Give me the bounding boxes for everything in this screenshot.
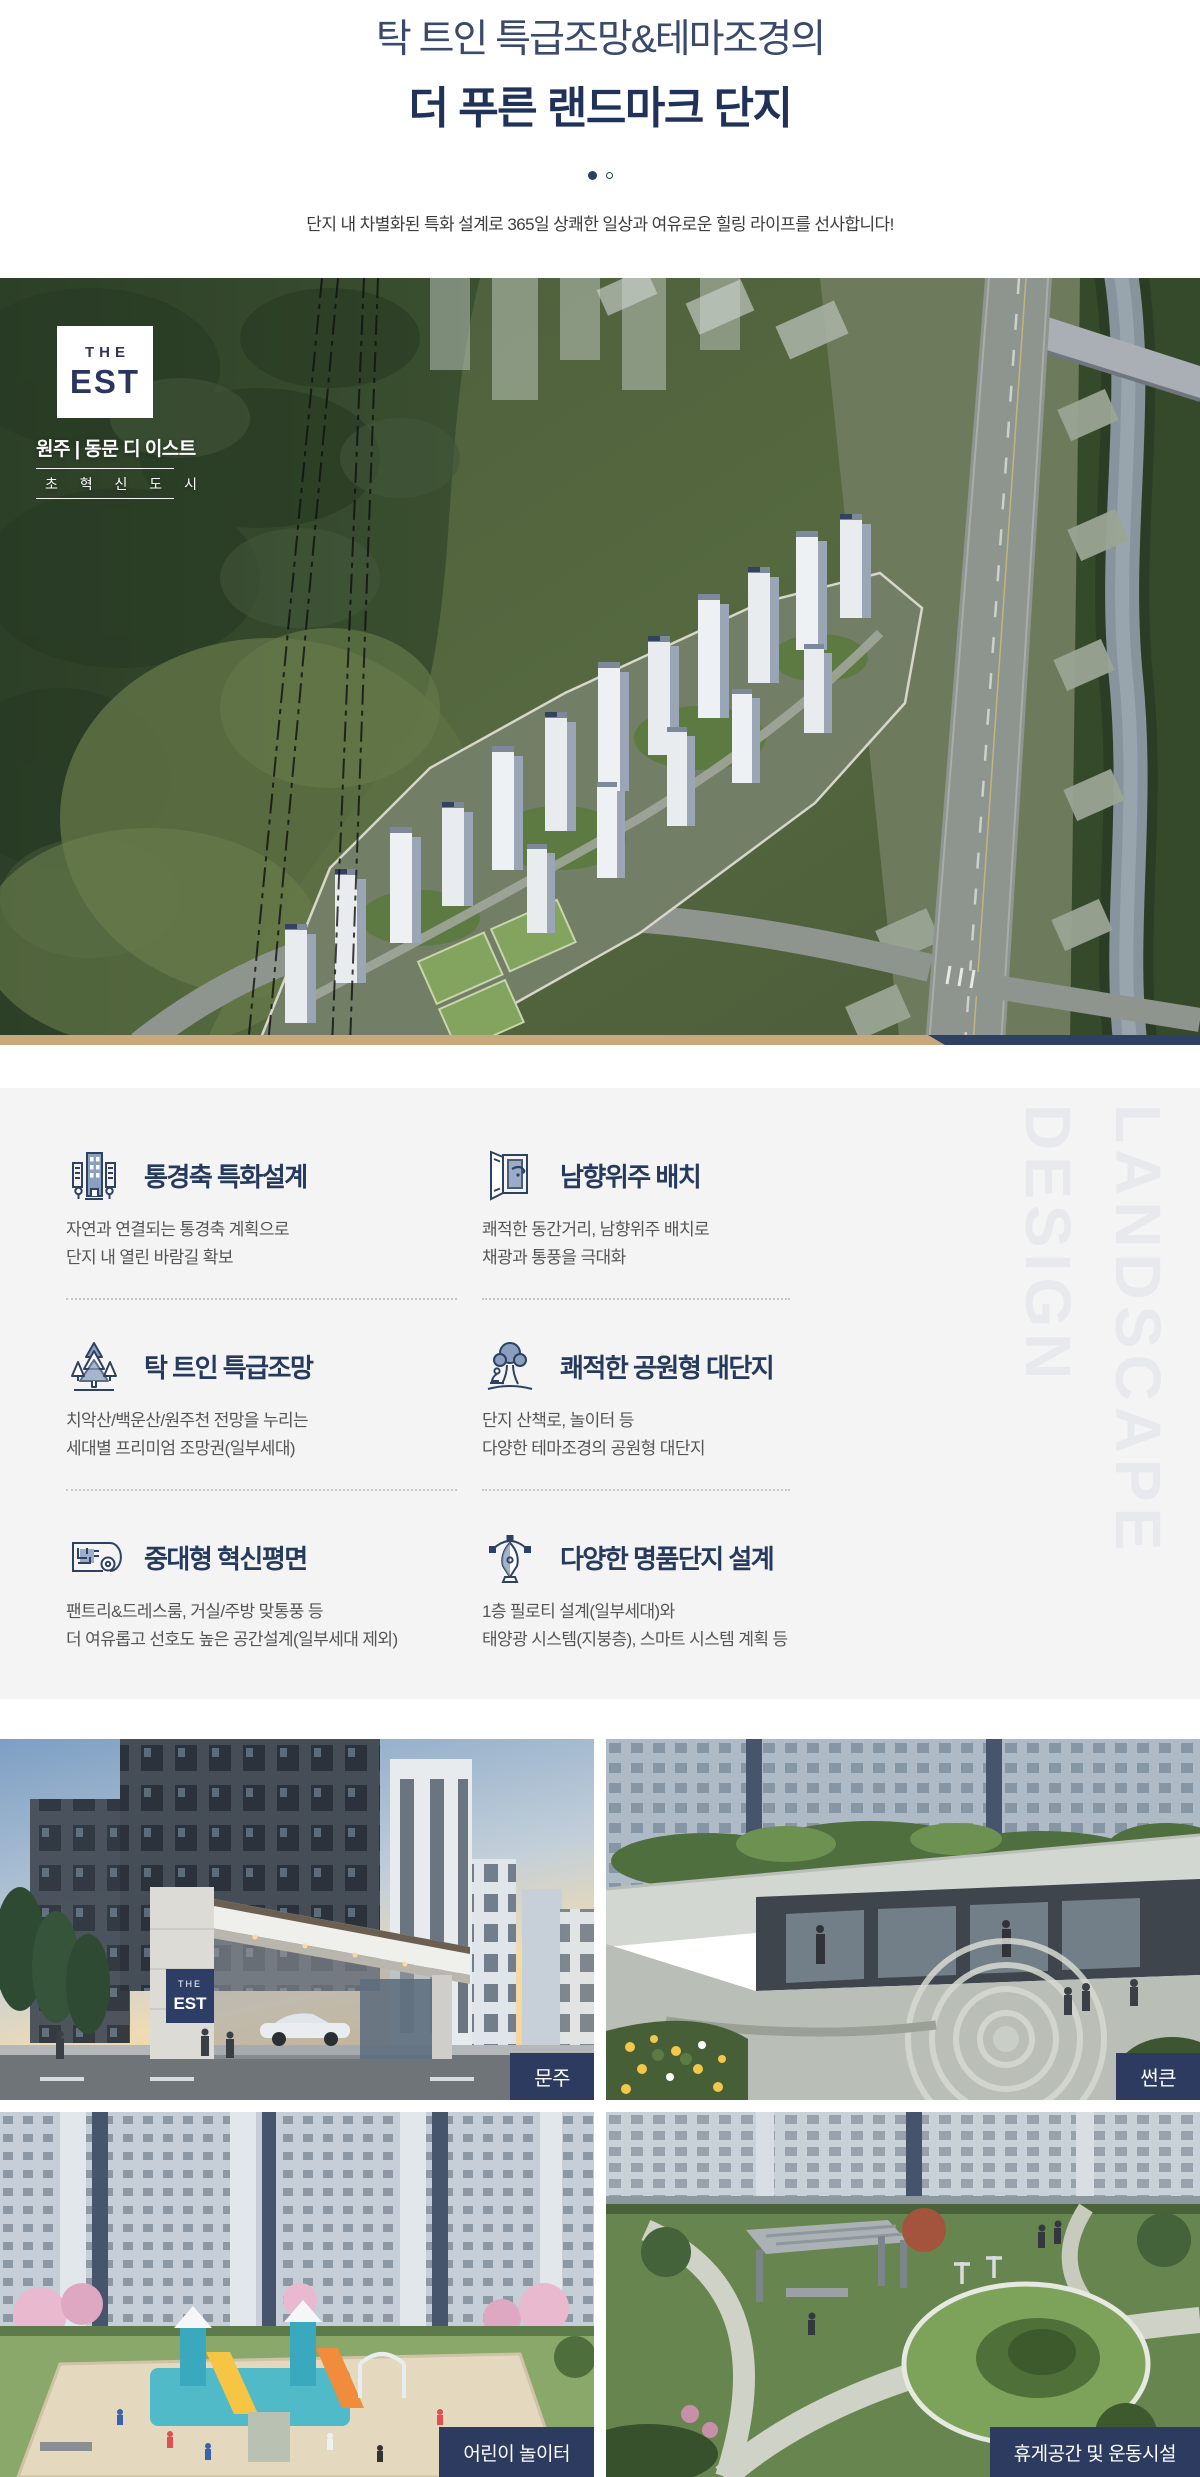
- feature-title: 중대형 혁신평면: [144, 1539, 307, 1576]
- hero-header: 탁 트인 특급조망&테마조경의 더 푸른 랜드마크 단지 단지 내 차별화된 특…: [0, 0, 1200, 278]
- feature-title: 남향위주 배치: [560, 1157, 700, 1194]
- feature-premium-design: 다양한 명품단지 설계 1층 필로티 설계(일부세대)와태양광 시스템(지붕층)…: [482, 1529, 790, 1680]
- feature-description: 쾌적한 동간거리, 남향위주 배치로채광과 통풍을 극대화: [482, 1216, 790, 1272]
- accent-bar-navy: [0, 1035, 1200, 1045]
- meadow-patch: [220, 628, 440, 788]
- tile-label-playground: 어린이 놀이터: [439, 2427, 594, 2477]
- feature-description: 단지 산책로, 놀이터 등다양한 테마조경의 공원형 대단지: [482, 1407, 790, 1463]
- feature-description: 자연과 연결되는 통경축 계획으로단지 내 열린 바람길 확보: [66, 1216, 457, 1272]
- landscape-design-section: DESIGN LANDSCAPE: [0, 1088, 1200, 1699]
- sunken-rendering-image: [606, 1739, 1200, 2100]
- accent-bar-tan: [0, 1035, 945, 1045]
- feature-title: 탁 트인 특급조망: [144, 1348, 312, 1385]
- feature-description: 치악산/백운산/원주천 전망을 누리는세대별 프리미엄 조망권(일부세대): [66, 1407, 457, 1463]
- feature-innovative-floorplan: 중대형 혁신평면 팬트리&드레스룸, 거실/주방 맞통풍 등더 여유롭고 선호도…: [66, 1529, 457, 1680]
- gallery-tile-gate: THE EST 문주: [0, 1739, 594, 2100]
- feature-title: 쾌적한 공원형 대단지: [560, 1348, 773, 1385]
- hero-description: 단지 내 차별화된 특화 설계로 365일 상쾌한 일상과 여유로운 힐링 라이…: [0, 210, 1200, 235]
- park-tree-bench-icon: [482, 1338, 538, 1394]
- playground-rendering-image: [0, 2112, 594, 2477]
- landing-page: 탁 트인 특급조망&테마조경의 더 푸른 랜드마크 단지 단지 내 차별화된 특…: [0, 0, 1200, 2477]
- gate-sign-the: THE: [178, 1979, 202, 1989]
- watermark-text: DESIGN LANDSCAPE: [1016, 1104, 1170, 1556]
- aerial-site-plan-image: [0, 278, 1200, 1045]
- gate-sign-est: EST: [173, 1994, 207, 2013]
- hero-title-line2: 더 푸른 랜드마크 단지: [0, 72, 1200, 136]
- carousel-pagination: [0, 170, 1200, 180]
- brand-logo-the: THE: [80, 344, 130, 361]
- feature-view-axis: 통경축 특화설계 자연과 연결되는 통경축 계획으로단지 내 열린 바람길 확보: [66, 1147, 457, 1300]
- gallery-tile-playground: 어린이 놀이터: [0, 2112, 594, 2477]
- white-gap: [0, 1045, 1200, 1088]
- river: [1120, 278, 1132, 1045]
- feature-south-facing: 남향위주 배치 쾌적한 동간거리, 남향위주 배치로채광과 통풍을 극대화: [482, 1147, 790, 1300]
- brand-badge: THE EST 원주 | 동문 디 이스트 초 혁 신 도 시: [36, 326, 174, 499]
- view-axis-buildings-icon: [66, 1147, 122, 1203]
- pen-nib-design-icon: [482, 1529, 538, 1585]
- tile-label-gate: 문주: [510, 2053, 594, 2100]
- brand-logo-est: EST: [70, 363, 140, 401]
- feature-description: 1층 필로티 설계(일부세대)와태양광 시스템(지붕층), 스마트 시스템 계획…: [482, 1598, 790, 1654]
- watermark-design: DESIGN: [1016, 1104, 1080, 1556]
- white-gap: [0, 1699, 1200, 1739]
- brand-logo: THE EST: [57, 326, 153, 418]
- feature-description: 팬트리&드레스룸, 거실/주방 맞통풍 등더 여유롭고 선호도 높은 공간설계(…: [66, 1598, 457, 1654]
- hero-title-line1: 탁 트인 특급조망&테마조경의: [0, 8, 1200, 64]
- gallery-tile-sunken: 썬큰: [606, 1739, 1200, 2100]
- gate-rendering-image: THE EST: [0, 1739, 594, 2100]
- pagination-dot-inactive[interactable]: [606, 172, 613, 179]
- tile-label-sunken: 썬큰: [1116, 2053, 1200, 2100]
- open-window-icon: [482, 1147, 538, 1203]
- feature-premium-view: 탁 트인 특급조망 치악산/백운산/원주천 전망을 누리는세대별 프리미엄 조망…: [66, 1338, 457, 1491]
- rest-area-rendering-image: [606, 2112, 1200, 2477]
- tile-label-rest-area: 휴게공간 및 운동시설: [990, 2427, 1200, 2477]
- aerial-rendering-section: THE EST 원주 | 동문 디 이스트 초 혁 신 도 시: [0, 278, 1200, 1045]
- feature-title: 통경축 특화설계: [144, 1157, 307, 1194]
- feature-grid: 통경축 특화설계 자연과 연결되는 통경축 계획으로단지 내 열린 바람길 확보: [66, 1147, 790, 1680]
- brand-slogan: 초 혁 신 도 시: [36, 468, 174, 499]
- feature-title: 다양한 명품단지 설계: [560, 1539, 773, 1576]
- pine-trees-icon: [66, 1338, 122, 1394]
- feature-park-complex: 쾌적한 공원형 대단지 단지 산책로, 놀이터 등다양한 테마조경의 공원형 대…: [482, 1338, 790, 1491]
- amenity-gallery: THE EST 문주: [0, 1739, 1200, 2477]
- watermark-landscape: LANDSCAPE: [1106, 1104, 1170, 1556]
- pagination-dot-active[interactable]: [588, 171, 597, 180]
- gallery-tile-rest-area: 휴게공간 및 운동시설: [606, 2112, 1200, 2477]
- floorplan-scroll-icon: [66, 1529, 122, 1585]
- brand-location: 원주 | 동문 디 이스트: [36, 434, 174, 461]
